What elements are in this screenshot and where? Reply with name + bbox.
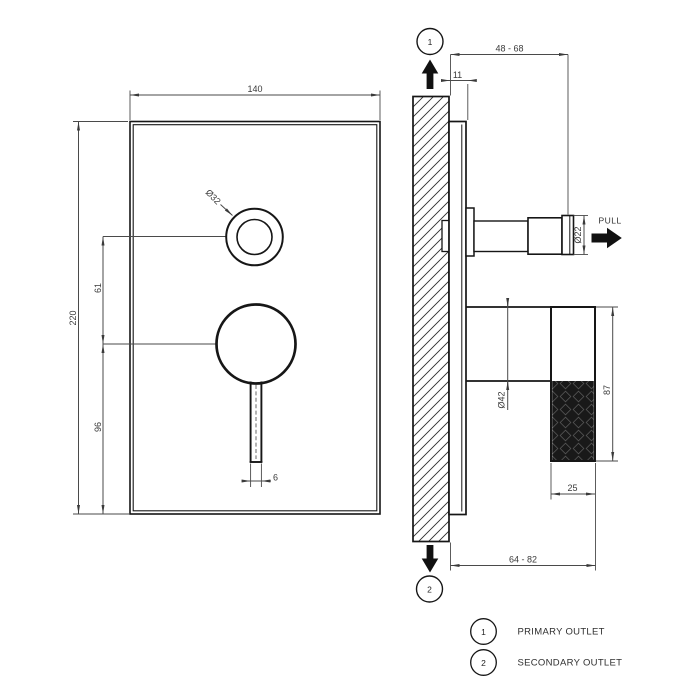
dim-label-lever-to-bottom: 96 xyxy=(93,422,103,432)
pull-label: PULL xyxy=(599,216,622,226)
knob-body xyxy=(528,218,562,254)
diverter-knob-outer-circle xyxy=(226,209,283,266)
mixer-handle-circle xyxy=(217,305,296,384)
dim-label-total-depth-range: 64 - 82 xyxy=(509,555,537,565)
knob-flange xyxy=(466,208,474,256)
handle-knurled-grip xyxy=(552,381,594,460)
dim-label-plate-height: 220 xyxy=(68,310,78,325)
legend: 1 PRIMARY OUTLET 2 SECONDARY OUTLET xyxy=(471,619,623,676)
pull-arrow-shaft xyxy=(592,234,608,243)
dim-label-body-diameter: Ø42 xyxy=(497,391,507,408)
dim-label-knob-diameter: Ø22 xyxy=(573,226,583,243)
dim-label-plate-thickness: 11 xyxy=(453,70,462,80)
up-arrow-icon xyxy=(422,60,439,90)
technical-drawing-canvas: 140 220 61 96 Ø32 6 xyxy=(0,0,700,700)
down-arrow-icon xyxy=(422,545,439,573)
callout-primary-outlet: 1 xyxy=(417,29,443,90)
dim-label-knob-to-lever: 61 xyxy=(93,283,103,293)
dim-label-depth-range: 48 - 68 xyxy=(495,44,523,54)
side-view: 48 - 68 11 Ø22 PULL Ø42 87 25 xyxy=(413,44,622,571)
wall-section xyxy=(413,97,449,542)
knob-stem xyxy=(474,221,528,252)
callout-secondary-outlet: 2 xyxy=(417,545,443,602)
callout-number-1: 1 xyxy=(428,37,433,47)
callout-number-2: 2 xyxy=(427,584,432,594)
dim-label-handle-length: 87 xyxy=(602,385,612,395)
legend-number-2: 2 xyxy=(481,658,486,668)
knob-end-cap xyxy=(562,216,574,255)
trim-plate-edge xyxy=(449,122,466,515)
pull-arrow-head xyxy=(607,228,622,248)
front-view: 140 220 61 96 Ø32 6 xyxy=(68,84,380,514)
drawing-sheet: 140 220 61 96 Ø32 6 xyxy=(0,0,700,700)
dim-label-lever-width: 6 xyxy=(273,473,278,483)
legend-number-1: 1 xyxy=(481,627,486,637)
legend-label-primary-outlet: PRIMARY OUTLET xyxy=(518,627,605,638)
legend-label-secondary-outlet: SECONDARY OUTLET xyxy=(518,658,623,669)
pull-arrow-icon xyxy=(592,228,622,248)
dim-label-plate-width: 140 xyxy=(247,84,262,94)
dim-label-handle-depth: 25 xyxy=(567,483,577,493)
in-wall-valve-body xyxy=(442,221,449,252)
